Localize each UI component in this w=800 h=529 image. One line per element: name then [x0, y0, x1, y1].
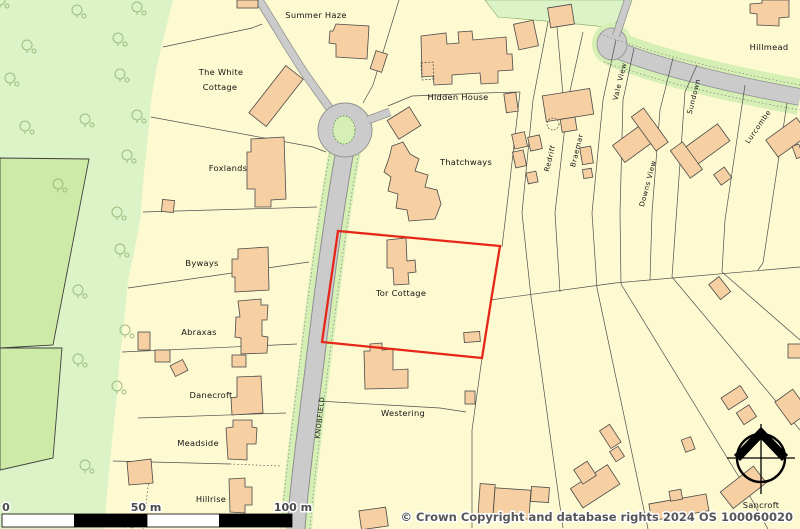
- building: [465, 391, 475, 404]
- building: [526, 171, 538, 184]
- label-danecroft: Danecroft: [190, 390, 233, 400]
- building: [530, 486, 549, 502]
- building: [155, 350, 170, 362]
- building: [359, 507, 388, 529]
- label-white-cottage-2: Cottage: [203, 82, 238, 92]
- roundabout-island: [333, 116, 355, 144]
- label-summer-haze: Summer Haze: [285, 10, 346, 20]
- building: [580, 146, 594, 165]
- label-foxlands: Foxlands: [209, 163, 247, 173]
- map-canvas: Summer Haze The White Cottage Hidden Hou…: [0, 0, 800, 529]
- label-byways: Byways: [185, 258, 218, 268]
- scale-tick-50: 50 m: [131, 501, 162, 514]
- building: [548, 4, 575, 28]
- building: [138, 332, 150, 350]
- building: [464, 331, 481, 342]
- building: [669, 489, 683, 501]
- scale-tick-0: 0: [2, 501, 10, 514]
- building: [582, 168, 592, 178]
- label-hillmead: Hillmead: [750, 42, 789, 52]
- label-hillrise: Hillrise: [196, 494, 226, 504]
- building: [232, 355, 246, 367]
- building: [528, 135, 543, 151]
- label-sancroft: Sancroft: [743, 500, 780, 510]
- building: [504, 92, 519, 112]
- label-hidden-house: Hidden House: [427, 92, 488, 102]
- scale-tick-100: 100 m: [274, 501, 312, 514]
- label-white-cottage-1: The White: [198, 67, 243, 77]
- building: [788, 344, 800, 358]
- building: [237, 0, 258, 8]
- field-parcel: [0, 348, 62, 470]
- map-viewport: Summer Haze The White Cottage Hidden Hou…: [0, 0, 800, 529]
- label-abraxas: Abraxas: [181, 327, 217, 337]
- building: [127, 459, 153, 485]
- building: [161, 199, 174, 212]
- label-westering: Westering: [381, 408, 425, 418]
- building: [512, 132, 528, 149]
- building: [560, 117, 577, 132]
- label-tor-cottage: Tor Cottage: [375, 288, 426, 298]
- label-meadside: Meadside: [177, 438, 219, 448]
- label-thatchways: Thatchways: [439, 157, 492, 167]
- copyright-text: © Crown Copyright and database rights 20…: [401, 510, 793, 524]
